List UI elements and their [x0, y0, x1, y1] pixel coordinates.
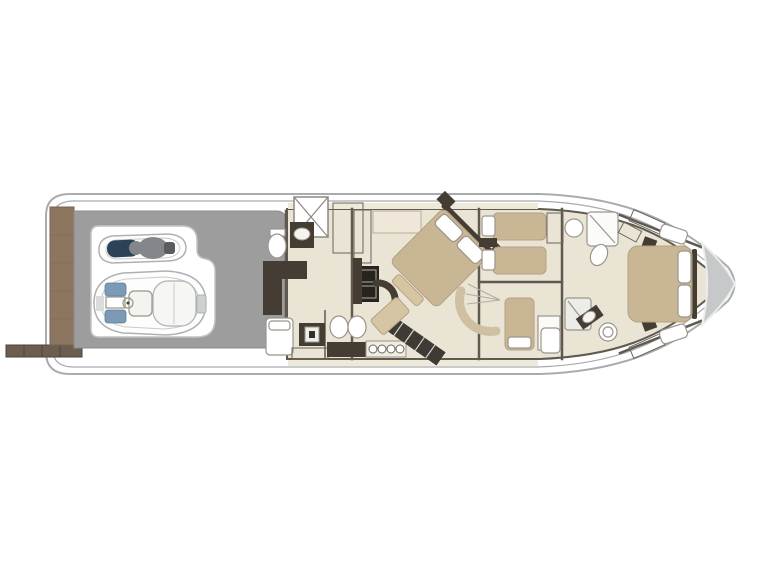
twin-nightstand: [479, 238, 497, 247]
tender-bow-cushion-bottom: [105, 310, 126, 323]
twin-bed-a: [493, 213, 546, 240]
bow-area: [702, 243, 735, 325]
vanity-counter: [327, 342, 369, 357]
twin-pillow-b: [482, 250, 495, 270]
yacht-floorplan-page: [0, 0, 771, 579]
anchor-locker: [702, 243, 735, 325]
tender-engine: [197, 295, 206, 313]
washer: [299, 323, 325, 346]
galley-cabinet: [373, 211, 421, 233]
jet-ski-rider-body: [138, 237, 168, 259]
vip-pillow-top: [678, 251, 691, 283]
round-sink: [565, 219, 583, 237]
tender-bow-step: [96, 296, 104, 311]
twin-pillow-a: [482, 216, 495, 236]
yacht-floorplan-image: [0, 0, 771, 579]
tender-bow-cushion-top: [105, 283, 126, 296]
tender-wheel-hub: [127, 302, 130, 305]
stern-area: [6, 207, 82, 357]
jet-ski-handlebar: [164, 242, 175, 254]
crew-pillow: [269, 321, 290, 330]
tender-bow-seat: [106, 297, 125, 308]
tender-garage: [74, 211, 286, 348]
hullside-cabinets-bottom: [288, 360, 538, 366]
mid-berth: [541, 328, 560, 353]
swim-platform-teak: [50, 207, 74, 345]
vip-headboard: [692, 249, 697, 319]
cooktop-four-burners: [366, 341, 406, 357]
passerelle-gangway: [6, 345, 82, 357]
twin-sink-left: [330, 316, 348, 338]
rib-tender: [94, 271, 206, 335]
toilet-mid: [599, 323, 617, 341]
crew-basin: [294, 228, 310, 240]
mid-pillow: [508, 337, 531, 348]
tv-cabinet: [353, 258, 362, 304]
vip-pillow-bottom: [678, 285, 691, 317]
toilet-crew: [268, 234, 286, 258]
twin-bed-b: [493, 247, 546, 274]
twin-sink-right: [348, 316, 366, 338]
jet-ski: [99, 234, 186, 263]
